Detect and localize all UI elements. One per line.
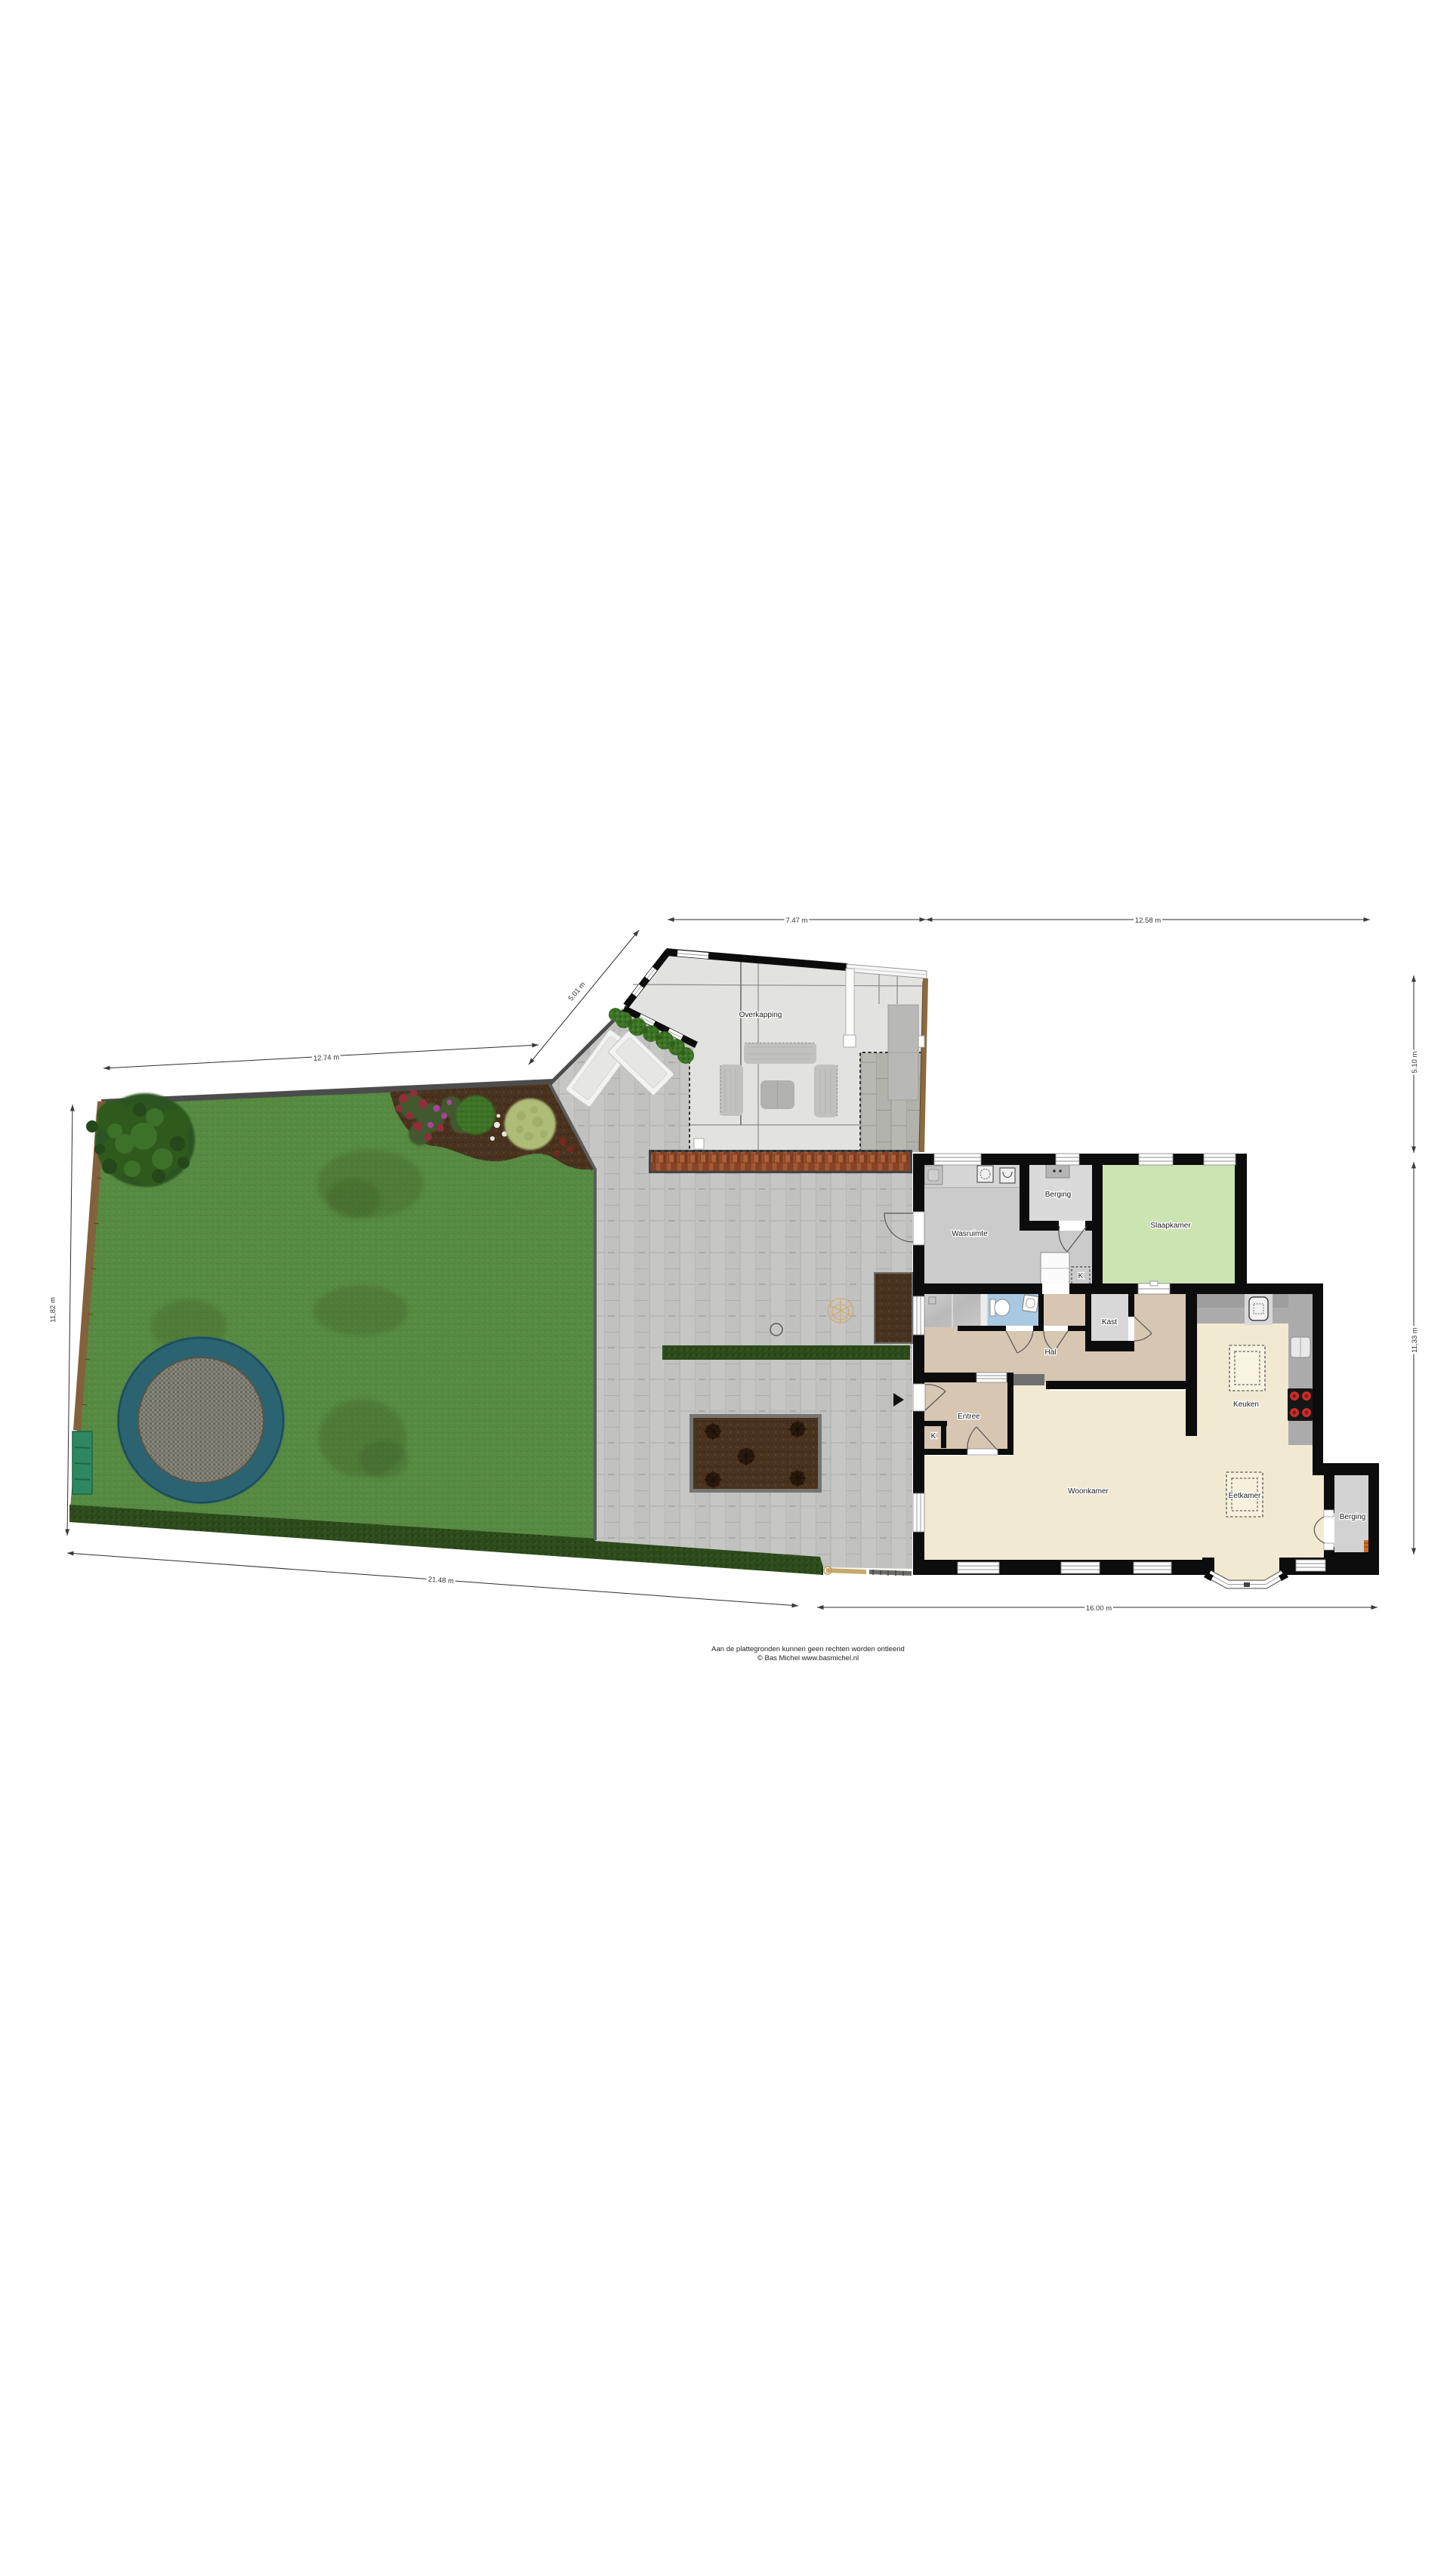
svg-text:Berging: Berging <box>1045 1191 1071 1199</box>
svg-text:Berging: Berging <box>1340 1513 1365 1521</box>
svg-text:Overkapping: Overkapping <box>739 1011 782 1019</box>
svg-text:Entree: Entree <box>958 1413 980 1421</box>
svg-text:K: K <box>1078 1272 1084 1280</box>
svg-text:12.58 m: 12.58 m <box>1135 917 1161 925</box>
svg-text:Hal: Hal <box>1044 1348 1056 1357</box>
svg-text:12.74 m: 12.74 m <box>313 1053 340 1063</box>
svg-text:Kast: Kast <box>1102 1318 1117 1327</box>
svg-text:K: K <box>931 1432 936 1441</box>
svg-text:Wasruimte: Wasruimte <box>952 1230 988 1238</box>
svg-text:11,33 m: 11,33 m <box>1411 1327 1419 1353</box>
svg-text:Woonkamer: Woonkamer <box>1068 1487 1109 1496</box>
svg-text:Aan de plattegronden kunnen ge: Aan de plattegronden kunnen geen rechten… <box>711 1645 905 1653</box>
svg-text:7.47 m: 7.47 m <box>785 917 807 925</box>
svg-text:5.10 m: 5.10 m <box>1411 1051 1419 1073</box>
svg-text:Keuken: Keuken <box>1233 1400 1259 1409</box>
svg-text:16.00 m: 16.00 m <box>1086 1604 1112 1613</box>
svg-text:Slaapkamer: Slaapkamer <box>1150 1222 1191 1230</box>
svg-text:© Bas Michel www.basmichel.nl: © Bas Michel www.basmichel.nl <box>757 1654 859 1662</box>
svg-text:Eetkamer: Eetkamer <box>1229 1492 1261 1500</box>
svg-text:11,82 m: 11,82 m <box>49 1297 57 1323</box>
